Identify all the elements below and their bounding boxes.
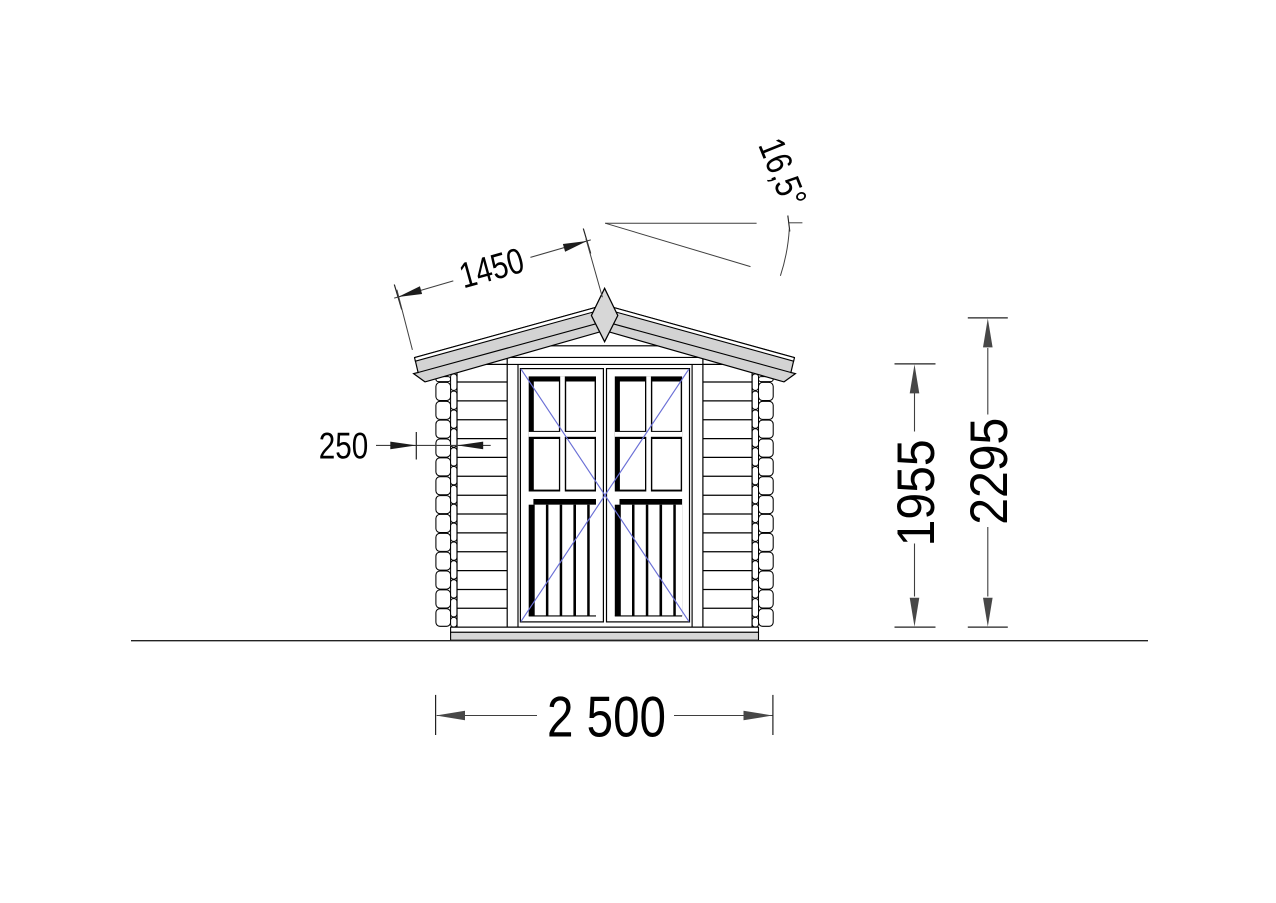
svg-text:2295: 2295 xyxy=(960,418,1019,525)
svg-text:250: 250 xyxy=(319,425,369,466)
svg-text:16,5°: 16,5° xyxy=(750,132,814,212)
svg-text:1450: 1450 xyxy=(455,239,529,296)
svg-text:2 500: 2 500 xyxy=(547,685,666,749)
svg-text:1955: 1955 xyxy=(887,439,946,546)
